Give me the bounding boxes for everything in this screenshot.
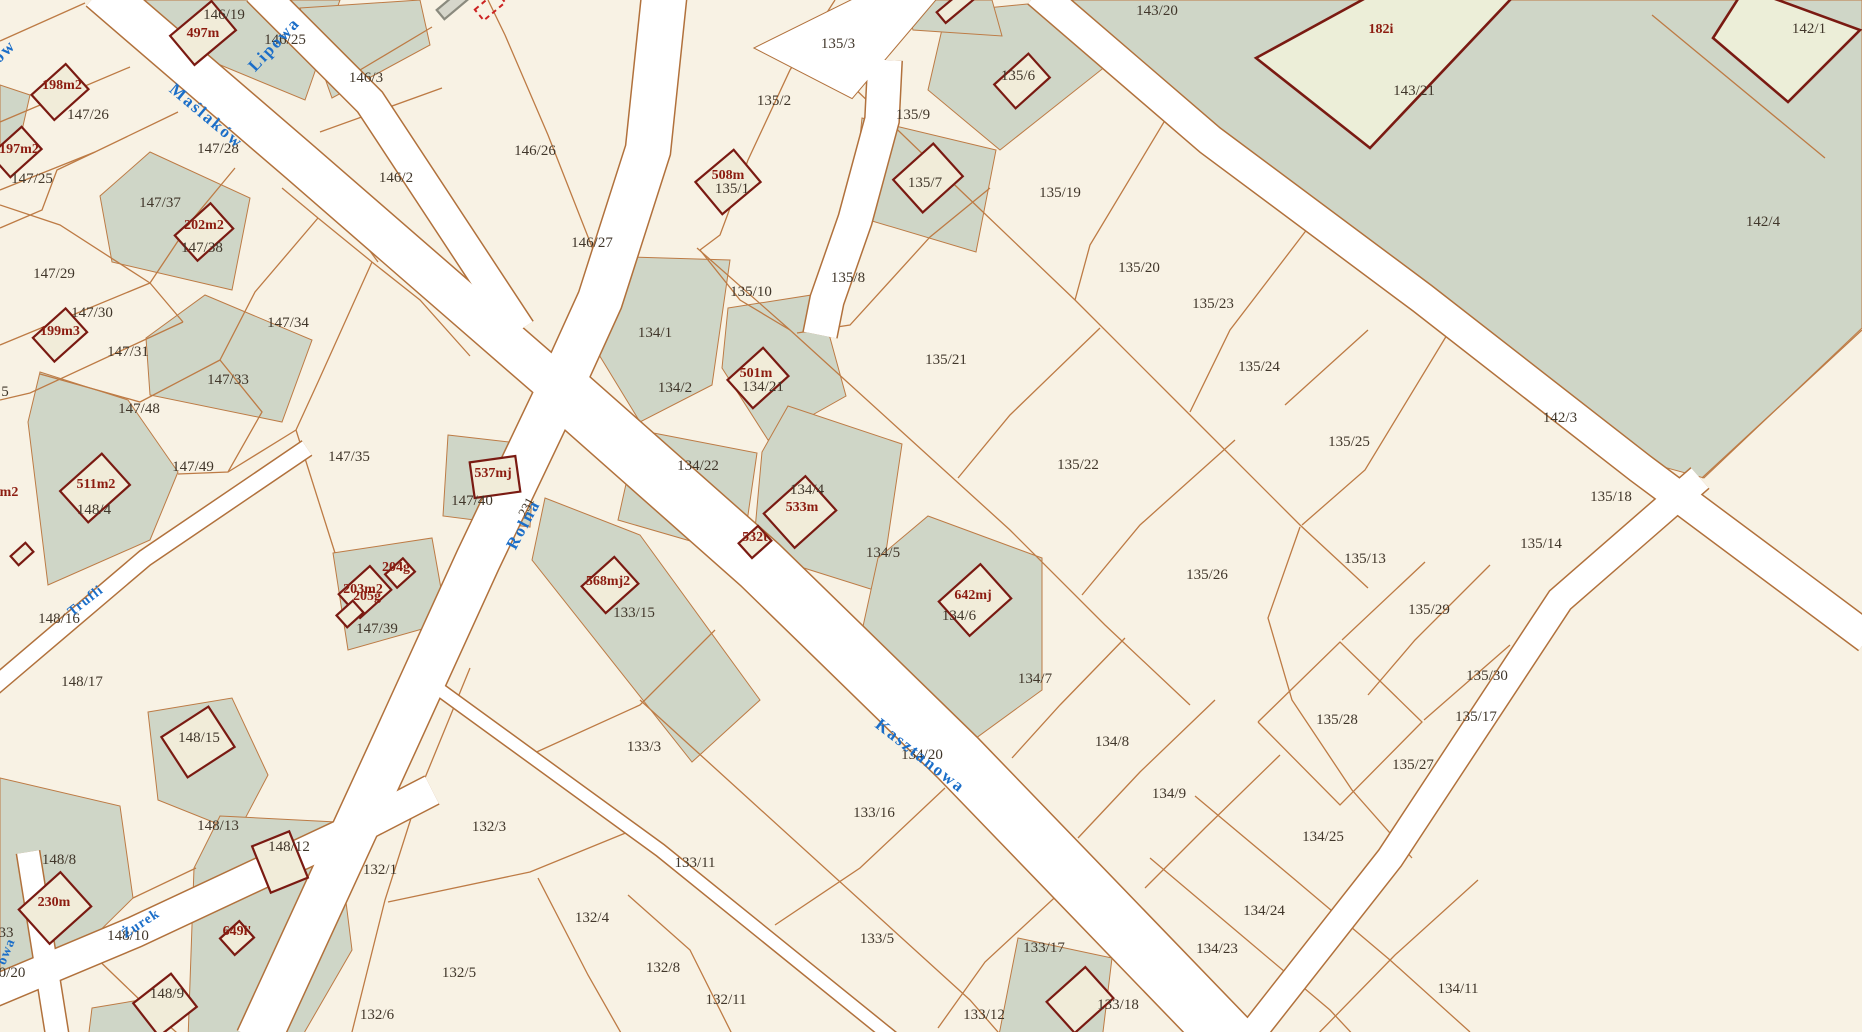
parcel-label: 135/9 xyxy=(896,107,930,123)
parcel-label: 143/20 xyxy=(1136,3,1178,19)
parcel-label: 132/8 xyxy=(646,960,680,976)
parcel-label: 147/35 xyxy=(328,449,370,465)
parcel-label: 135/3 xyxy=(821,36,855,52)
parcel-label: 146/3 xyxy=(349,70,383,86)
parcel-label: 134/6 xyxy=(942,608,977,624)
building-label: 533m xyxy=(786,500,819,515)
parcel-label: 147/48 xyxy=(118,401,160,417)
parcel-label: 147/40 xyxy=(451,493,493,509)
parcel-label: 134/23 xyxy=(1196,941,1238,957)
parcel-label: 133/18 xyxy=(1097,997,1139,1013)
parcel-label: 5 xyxy=(1,384,9,400)
map-canvas[interactable]: 146/19146/25146/3147/26147/28146/2147/25… xyxy=(0,0,1862,1032)
parcel-label: 143/21 xyxy=(1393,83,1435,99)
parcel-label: 148/15 xyxy=(178,730,220,746)
parcel-label: 134/2 xyxy=(658,380,692,396)
parcel-label: 135/22 xyxy=(1057,457,1099,473)
parcel-label: 142/4 xyxy=(1746,214,1781,230)
parcel-label: 134/22 xyxy=(677,458,719,474)
parcel-label: 134/1 xyxy=(638,325,672,341)
parcel-label: 147/38 xyxy=(181,240,223,256)
parcel-label: 134/25 xyxy=(1302,829,1344,845)
parcel-label: 146/19 xyxy=(203,7,245,23)
building-label: 197m2 xyxy=(0,142,39,157)
parcel-label: 148/17 xyxy=(61,674,103,690)
parcel-label: 135/23 xyxy=(1192,296,1234,312)
building-label: 649i' xyxy=(223,924,252,939)
building-label: 508m xyxy=(712,168,745,183)
parcel-label: 135/10 xyxy=(730,284,772,300)
parcel-label: 134/5 xyxy=(866,545,900,561)
parcel-label: 142/1 xyxy=(1792,21,1826,37)
parcel-label: 147/26 xyxy=(67,107,109,123)
parcel-label: 147/33 xyxy=(207,372,249,388)
parcel-label: 133/12 xyxy=(963,1007,1005,1023)
parcel-label: 132/5 xyxy=(442,965,476,981)
parcel-label: 135/8 xyxy=(831,270,865,286)
parcel-label: 147/30 xyxy=(71,305,113,321)
parcel-label: 133/11 xyxy=(674,855,715,871)
parcel-label: 134/24 xyxy=(1243,903,1285,919)
parcel-label: 146/27 xyxy=(571,235,613,251)
parcel-label: 132/11 xyxy=(705,992,746,1008)
parcel-label: 147/34 xyxy=(267,315,309,331)
parcel-label: 135/30 xyxy=(1466,668,1508,684)
building-label: 198m2 xyxy=(42,78,82,93)
building-label: 182i xyxy=(1369,22,1394,37)
parcel-label: 135/26 xyxy=(1186,567,1228,583)
parcel-label: 147/31 xyxy=(107,344,149,360)
parcel-label: 135/14 xyxy=(1520,536,1562,552)
parcel-label: 135/29 xyxy=(1408,602,1450,618)
building-label: 501m xyxy=(740,366,773,381)
parcel-label: 134/7 xyxy=(1018,671,1053,687)
parcel-label: 134/8 xyxy=(1095,734,1129,750)
building-label: 642mj xyxy=(954,588,991,603)
parcel-label: 135/27 xyxy=(1392,757,1434,773)
parcel-label: 134/11 xyxy=(1437,981,1478,997)
parcel-label: 146/2 xyxy=(379,170,413,186)
parcel-label: 135/1 xyxy=(715,181,749,197)
parcel-label: 135/20 xyxy=(1118,260,1160,276)
parcel-label: 133/16 xyxy=(853,805,895,821)
parcel-label: 135/18 xyxy=(1590,489,1632,505)
cadastral-map[interactable]: 146/19146/25146/3147/26147/28146/2147/25… xyxy=(0,0,1862,1032)
building-label: 568mj2 xyxy=(586,574,630,589)
parcel-label: 134/4 xyxy=(790,482,825,498)
parcel-label: 135/17 xyxy=(1455,709,1497,725)
building-label: 202m2 xyxy=(184,218,224,233)
parcel-label: 132/6 xyxy=(360,1007,395,1023)
parcel-label: 132/1 xyxy=(363,862,397,878)
parcel-label: 135/21 xyxy=(925,352,967,368)
parcel-label: 148/12 xyxy=(268,839,310,855)
parcel-label: 148/4 xyxy=(77,502,112,518)
parcel-label: 147/29 xyxy=(33,266,75,282)
building-label: 511m2 xyxy=(77,477,116,492)
building-label: 497m xyxy=(187,26,220,41)
parcel-label: 132/3 xyxy=(472,819,506,835)
parcel-label: 146/26 xyxy=(514,143,556,159)
parcel-label: 148/8 xyxy=(42,852,76,868)
parcel-label: 135/25 xyxy=(1328,434,1370,450)
building-label: 204g xyxy=(382,560,410,575)
parcel-label: 134/21 xyxy=(742,379,784,395)
parcel-label: 133/3 xyxy=(627,739,661,755)
parcel-label: 0/20 xyxy=(0,965,25,981)
parcel-label: 133/15 xyxy=(613,605,655,621)
building-label: 537mj xyxy=(474,466,511,481)
building-label: 205g xyxy=(353,589,381,604)
parcel-label: 142/3 xyxy=(1543,410,1577,426)
building-label: 199m3 xyxy=(40,324,80,339)
parcel-label: 133/5 xyxy=(860,931,894,947)
parcel-label: 147/25 xyxy=(11,171,53,187)
building-label: 532t xyxy=(742,530,768,545)
parcel-label: 147/49 xyxy=(172,459,214,475)
parcel-label: 135/2 xyxy=(757,93,791,109)
building-label: 230m xyxy=(38,895,71,910)
parcel-label: 135/24 xyxy=(1238,359,1280,375)
parcel-label: 148/9 xyxy=(150,986,184,1002)
parcel-label: 147/37 xyxy=(139,195,181,211)
parcel-label: 135/7 xyxy=(908,175,943,191)
parcel-label: 148/13 xyxy=(197,818,239,834)
building-label: m2 xyxy=(0,485,18,500)
parcel-label: 132/4 xyxy=(575,910,610,926)
parcel-label: 135/28 xyxy=(1316,712,1358,728)
parcel-label: 135/6 xyxy=(1001,68,1036,84)
parcel-label: 147/39 xyxy=(356,621,398,637)
parcel-label: 135/13 xyxy=(1344,551,1386,567)
parcel-label: 135/19 xyxy=(1039,185,1081,201)
parcel-label: 133/17 xyxy=(1023,940,1065,956)
parcel-label: 134/9 xyxy=(1152,786,1186,802)
